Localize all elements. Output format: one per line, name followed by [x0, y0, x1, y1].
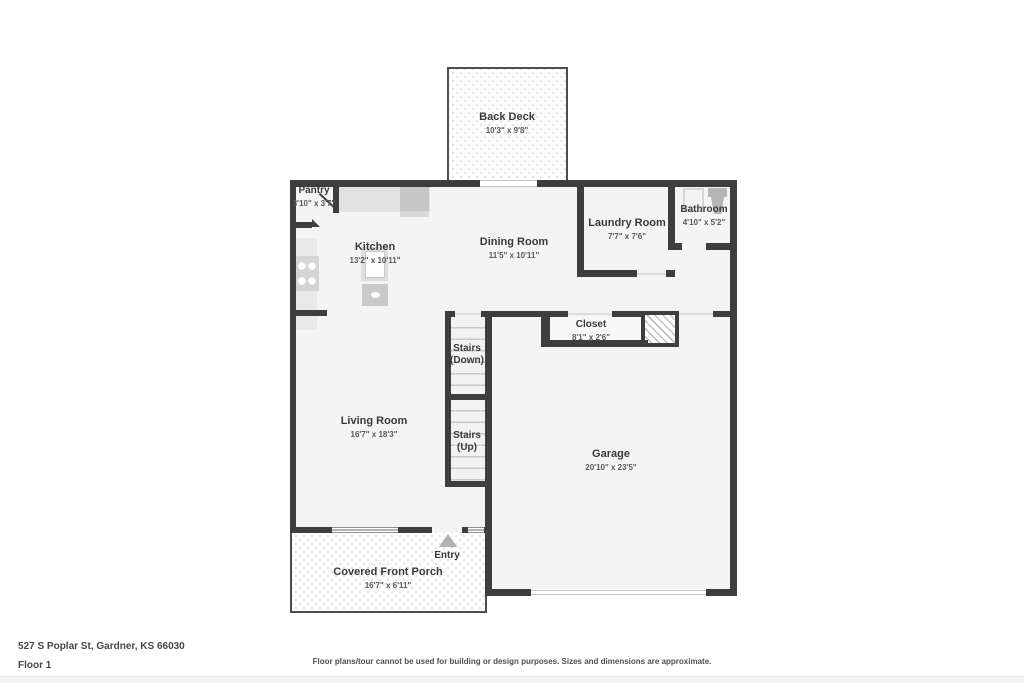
- kitchen-dims: 13'2" x 10'11": [350, 256, 401, 265]
- refrigerator-icon: [400, 186, 429, 211]
- stove-icon: [295, 256, 319, 291]
- back-deck-dims: 10'3" x 9'8": [479, 126, 535, 135]
- closet-door: [568, 313, 612, 315]
- laundry-room-name: Laundry Room: [588, 217, 666, 230]
- garage-name: Garage: [585, 448, 636, 461]
- room-label-stairs-down: Stairs (Down): [450, 343, 484, 366]
- garage-bottom-wall-left: [485, 589, 531, 596]
- hall-wall-2: [481, 311, 568, 317]
- dishwasher-icon: [362, 284, 388, 306]
- disclaimer-text: Floor plans/tour cannot be used for buil…: [313, 657, 712, 666]
- room-label-closet: Closet 8'1" x 2'6": [572, 319, 610, 342]
- living-room-dims: 16'7" x 18'3": [341, 430, 408, 439]
- front-window-left: [332, 527, 398, 533]
- refrigerator-base: [400, 211, 429, 217]
- garage-entry-door: [679, 313, 713, 315]
- kitchen-stub-wall: [290, 310, 327, 316]
- wall-front-1: [290, 527, 332, 533]
- toilet-icon: [708, 188, 727, 197]
- stairs-down-sub: (Down): [450, 355, 484, 367]
- floor-number-label: Floor 1: [18, 660, 51, 671]
- entry-name: Entry: [434, 550, 460, 562]
- front-porch-dims: 16'7" x 6'11": [333, 581, 442, 590]
- stairs-down-name: Stairs: [450, 343, 484, 355]
- room-label-living-room: Living Room 16'7" x 18'3": [341, 415, 408, 439]
- bathroom-bottom-wall-1: [668, 243, 682, 250]
- room-label-pantry: Pantry 3'10" x 3'7": [293, 185, 336, 208]
- garage-door: [531, 590, 706, 595]
- bathroom-name: Bathroom: [680, 204, 727, 216]
- pantry-bottom-wall: [290, 222, 312, 228]
- bathroom-bottom-wall-2: [706, 243, 737, 250]
- wall-front-2: [398, 527, 432, 533]
- laundry-room-dims: 7'7" x 7'6": [588, 232, 666, 241]
- closet-name: Closet: [572, 319, 610, 331]
- entry-arrow-icon: [439, 534, 457, 547]
- pantry-name: Pantry: [293, 185, 336, 197]
- wall-left: [290, 180, 296, 533]
- living-room-name: Living Room: [341, 415, 408, 428]
- front-porch-name: Covered Front Porch: [333, 566, 442, 579]
- laundry-bottom-wall-2: [666, 270, 675, 277]
- room-label-back-deck: Back Deck 10'3" x 9'8": [479, 111, 535, 135]
- bathroom-dims: 4'10" x 5'2": [680, 218, 727, 227]
- room-label-stairs-up: Stairs (Up): [453, 430, 481, 453]
- room-label-entry: Entry: [434, 550, 460, 562]
- stairs-divider-wall: [445, 394, 492, 400]
- room-label-bathroom: Bathroom 4'10" x 5'2": [680, 204, 727, 227]
- garage-bottom-wall-right: [706, 589, 737, 596]
- stairs-up-sub: (Up): [453, 442, 481, 454]
- stairs-entry: [455, 313, 481, 315]
- front-window-right: [468, 527, 484, 533]
- hall-wall-4: [713, 311, 737, 317]
- stairs-bottom-wall: [445, 481, 492, 487]
- laundry-door: [637, 273, 666, 275]
- room-label-dining-room: Dining Room 11'5" x 10'11": [480, 236, 548, 260]
- back-deck-name: Back Deck: [479, 111, 535, 124]
- floor-plan: Back Deck 10'3" x 9'8" Pantry 3'10" x 3'…: [0, 0, 1024, 682]
- pantry-dims: 3'10" x 3'7": [293, 199, 336, 208]
- room-label-front-porch: Covered Front Porch 16'7" x 6'11": [333, 566, 442, 590]
- deck-sliding-door: [480, 180, 537, 187]
- laundry-bottom-wall-1: [577, 270, 637, 277]
- garage-left-wall: [485, 313, 492, 596]
- dining-room-name: Dining Room: [480, 236, 548, 249]
- closet-dims: 8'1" x 2'6": [572, 333, 610, 342]
- dishwasher-knob: [371, 292, 380, 298]
- garage-dims: 20'10" x 23'5": [585, 463, 636, 472]
- dining-room-dims: 11'5" x 10'11": [480, 251, 548, 260]
- laundry-left-wall: [577, 186, 584, 277]
- property-address: 527 S Poplar St, Gardner, KS 66030: [18, 641, 185, 652]
- stairs-up-name: Stairs: [453, 430, 481, 442]
- room-label-garage: Garage 20'10" x 23'5": [585, 448, 636, 472]
- room-label-laundry-room: Laundry Room 7'7" x 7'6": [588, 217, 666, 241]
- bathroom-left-wall: [668, 186, 675, 250]
- room-label-kitchen: Kitchen 13'2" x 10'11": [350, 241, 401, 265]
- hall-wall-3: [612, 311, 641, 317]
- kitchen-name: Kitchen: [350, 241, 401, 254]
